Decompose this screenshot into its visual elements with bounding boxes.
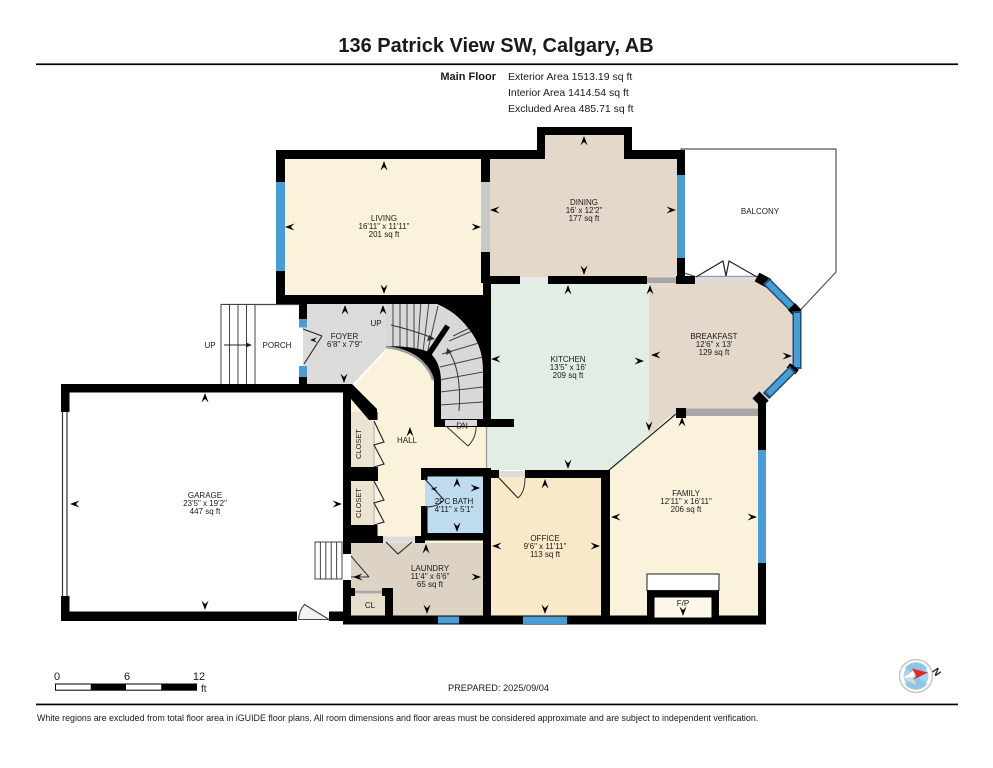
svg-text:209 sq ft: 209 sq ft	[553, 371, 584, 380]
svg-text:HALL: HALL	[397, 436, 418, 445]
svg-text:ft: ft	[201, 684, 207, 695]
svg-text:201 sq ft: 201 sq ft	[369, 230, 400, 239]
svg-text:F/P: F/P	[677, 599, 689, 608]
svg-text:UP: UP	[204, 341, 215, 350]
svg-text:136 Patrick View SW, Calgary,: 136 Patrick View SW, Calgary, AB	[338, 35, 653, 57]
svg-text:6: 6	[124, 671, 130, 683]
svg-text:CL: CL	[365, 601, 376, 610]
svg-text:0: 0	[54, 671, 60, 683]
svg-text:UP: UP	[370, 319, 381, 328]
svg-text:113 sq ft: 113 sq ft	[530, 550, 561, 559]
svg-text:6'8" x 7'9": 6'8" x 7'9"	[327, 340, 362, 349]
svg-text:White regions are excluded fro: White regions are excluded from total fl…	[37, 713, 758, 723]
svg-text:4'11" x 5'1": 4'11" x 5'1"	[435, 505, 474, 514]
svg-text:129 sq ft: 129 sq ft	[699, 348, 730, 357]
svg-text:206 sq ft: 206 sq ft	[671, 505, 702, 514]
svg-text:BALCONY: BALCONY	[741, 207, 780, 216]
svg-text:65 sq ft: 65 sq ft	[417, 580, 444, 589]
svg-text:177 sq ft: 177 sq ft	[569, 214, 600, 223]
svg-text:Interior Area 1414.54 sq ft: Interior Area 1414.54 sq ft	[508, 87, 629, 99]
svg-text:Excluded Area 485.71 sq ft: Excluded Area 485.71 sq ft	[508, 103, 634, 115]
svg-text:CLOSET: CLOSET	[354, 488, 363, 518]
svg-text:12: 12	[193, 671, 205, 683]
svg-text:447 sq ft: 447 sq ft	[190, 507, 221, 516]
svg-text:Main Floor: Main Floor	[440, 71, 496, 83]
svg-text:PREPARED: 2025/09/04: PREPARED: 2025/09/04	[448, 683, 549, 693]
svg-text:CLOSET: CLOSET	[354, 429, 363, 459]
svg-text:DN: DN	[456, 422, 468, 431]
svg-text:PORCH: PORCH	[263, 341, 292, 350]
svg-text:Exterior Area 1513.19 sq ft: Exterior Area 1513.19 sq ft	[508, 71, 632, 83]
